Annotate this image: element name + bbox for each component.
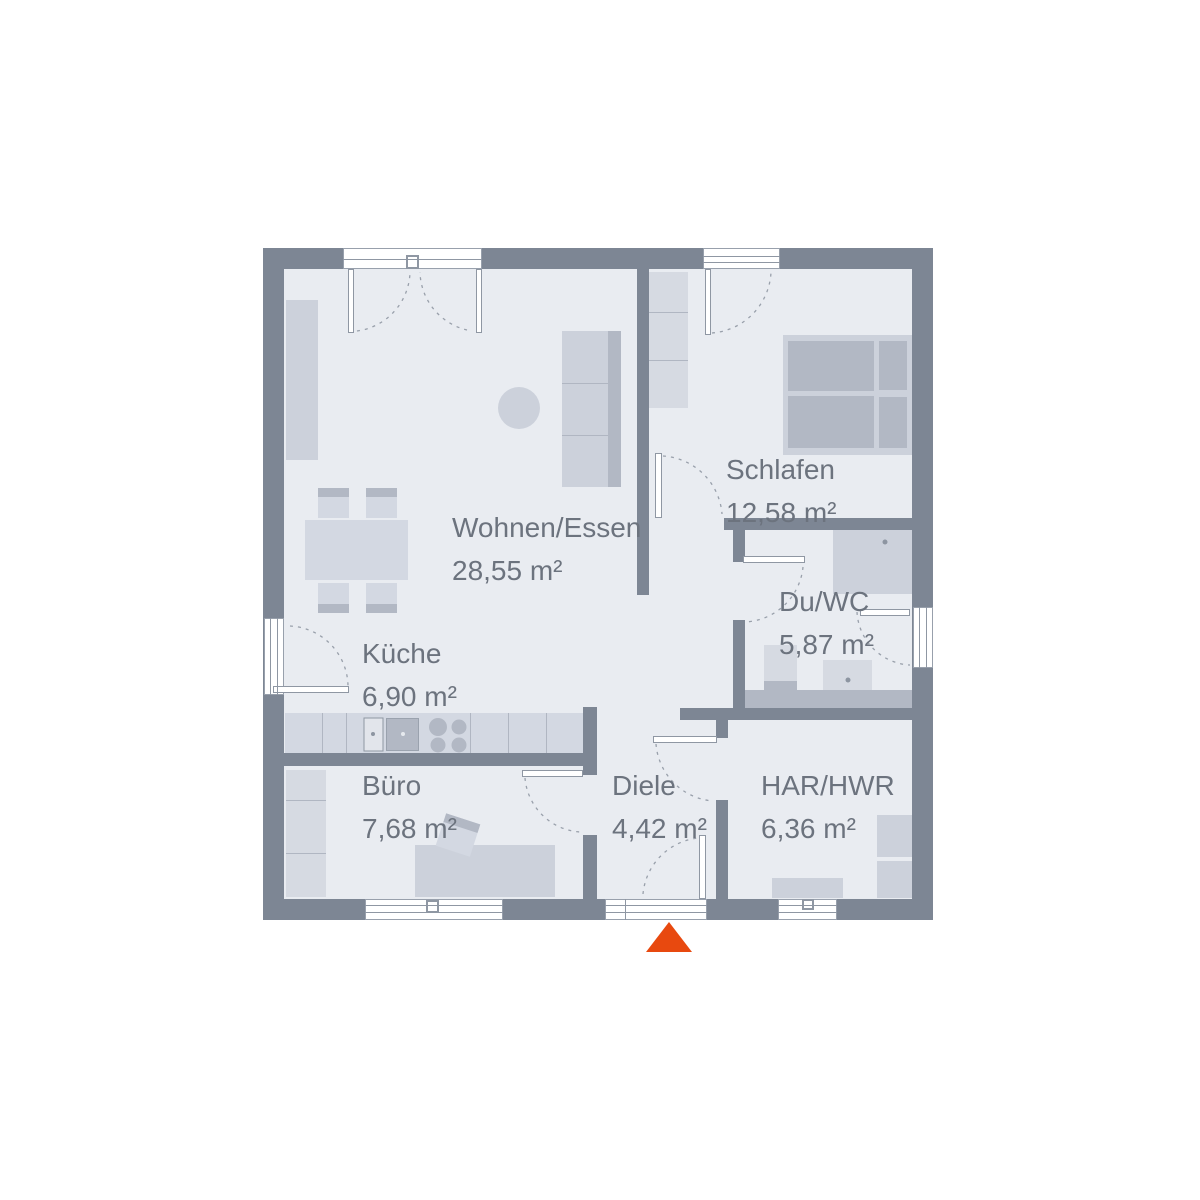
buero-door-leaf xyxy=(522,770,583,777)
office-shelf xyxy=(286,770,326,897)
wall-diele-har-stub xyxy=(716,720,728,738)
room-area: 6,36 m² xyxy=(761,807,895,850)
room-label-wohnen-essen: Wohnen/Essen 28,55 m² xyxy=(452,506,641,592)
room-label-schlafen: Schlafen 12,58 m² xyxy=(726,448,837,534)
coffee-table xyxy=(498,387,540,429)
room-name: Diele xyxy=(612,764,707,807)
kueche-window-leaf xyxy=(273,686,349,693)
dining-chair xyxy=(318,488,349,518)
schlafen-door-leaf xyxy=(655,453,662,518)
bed-mattress xyxy=(788,396,874,448)
room-name: HAR/HWR xyxy=(761,764,895,807)
entry-door-opening xyxy=(605,899,707,920)
dining-chair xyxy=(366,583,397,613)
utility-cabinet xyxy=(772,878,843,898)
har-door-leaf xyxy=(653,736,717,743)
room-area: 5,87 m² xyxy=(779,623,874,666)
room-name: Wohnen/Essen xyxy=(452,506,641,549)
desk xyxy=(415,845,555,897)
wall-exterior-left xyxy=(263,248,284,920)
sofa-seats xyxy=(562,331,608,487)
dryer xyxy=(877,861,912,898)
room-name: Schlafen xyxy=(726,448,837,491)
wall-duwc-bottom xyxy=(680,708,912,720)
duwc-door-leaf xyxy=(743,556,805,563)
entrance-marker-icon xyxy=(646,922,692,952)
room-label-har-hwr: HAR/HWR 6,36 m² xyxy=(761,764,895,850)
bed-pillow xyxy=(879,341,907,390)
wall-duwc-left xyxy=(733,620,745,712)
room-name: Küche xyxy=(362,632,457,675)
schlafen-window-leaf xyxy=(705,269,711,335)
dining-chair xyxy=(366,488,397,518)
wall-diele-har-lower xyxy=(716,800,728,899)
dining-table xyxy=(305,520,408,580)
bed-mattress xyxy=(788,341,874,391)
schlafen-window xyxy=(703,248,780,269)
room-area: 7,68 m² xyxy=(362,807,457,850)
wall-buero-right-lower xyxy=(583,835,597,899)
room-label-du-wc: Du/WC 5,87 m² xyxy=(779,580,874,666)
room-area: 6,90 m² xyxy=(362,675,457,718)
wall-buero-right-upper xyxy=(583,707,597,775)
room-label-diele: Diele 4,42 m² xyxy=(612,764,707,850)
kueche-window xyxy=(264,618,284,695)
wall-exterior-right xyxy=(912,248,933,920)
wardrobe xyxy=(649,272,688,408)
french-door-leaf-left xyxy=(348,269,354,333)
french-door-leaf-right xyxy=(476,269,482,333)
vanity-counter xyxy=(745,690,912,708)
room-area: 28,55 m² xyxy=(452,549,641,592)
room-name: Büro xyxy=(362,764,457,807)
room-label-buero: Büro 7,68 m² xyxy=(362,764,457,850)
duwc-window xyxy=(913,607,933,668)
har-window-post xyxy=(802,899,814,910)
sofa-backrest xyxy=(608,331,621,487)
sideboard xyxy=(286,300,318,460)
dining-chair xyxy=(318,583,349,613)
bed-pillow xyxy=(879,397,907,448)
kitchen-counter xyxy=(285,713,583,753)
room-area: 12,58 m² xyxy=(726,491,837,534)
french-door-post xyxy=(406,255,419,269)
room-label-kueche: Küche 6,90 m² xyxy=(362,632,457,718)
room-area: 4,42 m² xyxy=(612,807,707,850)
floorplan-canvas: Wohnen/Essen 28,55 m² Schlafen 12,58 m² … xyxy=(0,0,1200,1200)
room-name: Du/WC xyxy=(779,580,874,623)
buero-window-post xyxy=(426,900,439,913)
